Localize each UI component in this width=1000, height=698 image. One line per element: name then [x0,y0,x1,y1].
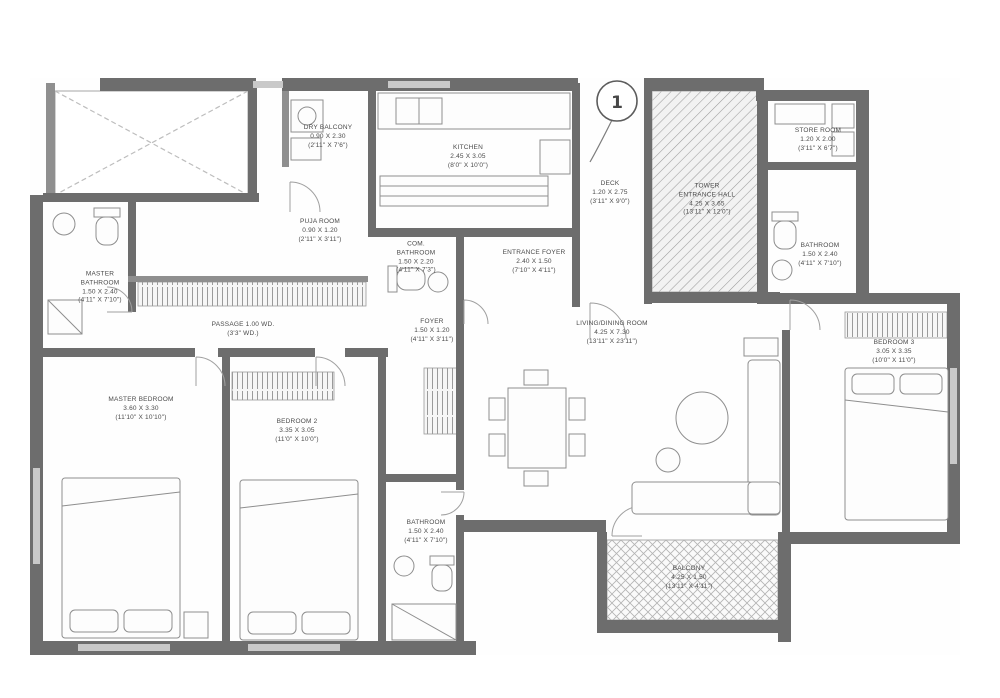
coffee-table-icon [656,448,680,472]
washbasin-icon [53,213,75,235]
wc-icon [430,556,454,591]
wardrobe-icon [845,312,947,338]
bed-icon [845,368,948,520]
void-cutout [55,91,248,195]
coffee-table-icon [676,392,728,444]
wc-icon [388,266,425,292]
fridge-icon [540,140,570,174]
bed-icon [240,480,358,640]
kitchen-sink-icon [396,98,442,124]
wc-icon [772,212,798,249]
wc-icon [94,208,120,245]
balcony-hatch [607,540,778,620]
washbasin-icon [428,272,448,292]
floor-plan: 1 DRY BALCONY 0.90 X 2.30 (2'11" X 7'6")… [0,0,1000,698]
washbasin-icon [394,556,414,576]
floor-plan-drawing: 1 [0,0,1000,698]
wardrobe-icon [138,282,366,306]
wardrobe-icon [232,372,334,400]
unit-number-text: 1 [611,93,623,113]
washing-machine-icon [291,100,323,160]
washbasin-icon [772,260,792,280]
tower-hall-hatch [652,91,758,292]
